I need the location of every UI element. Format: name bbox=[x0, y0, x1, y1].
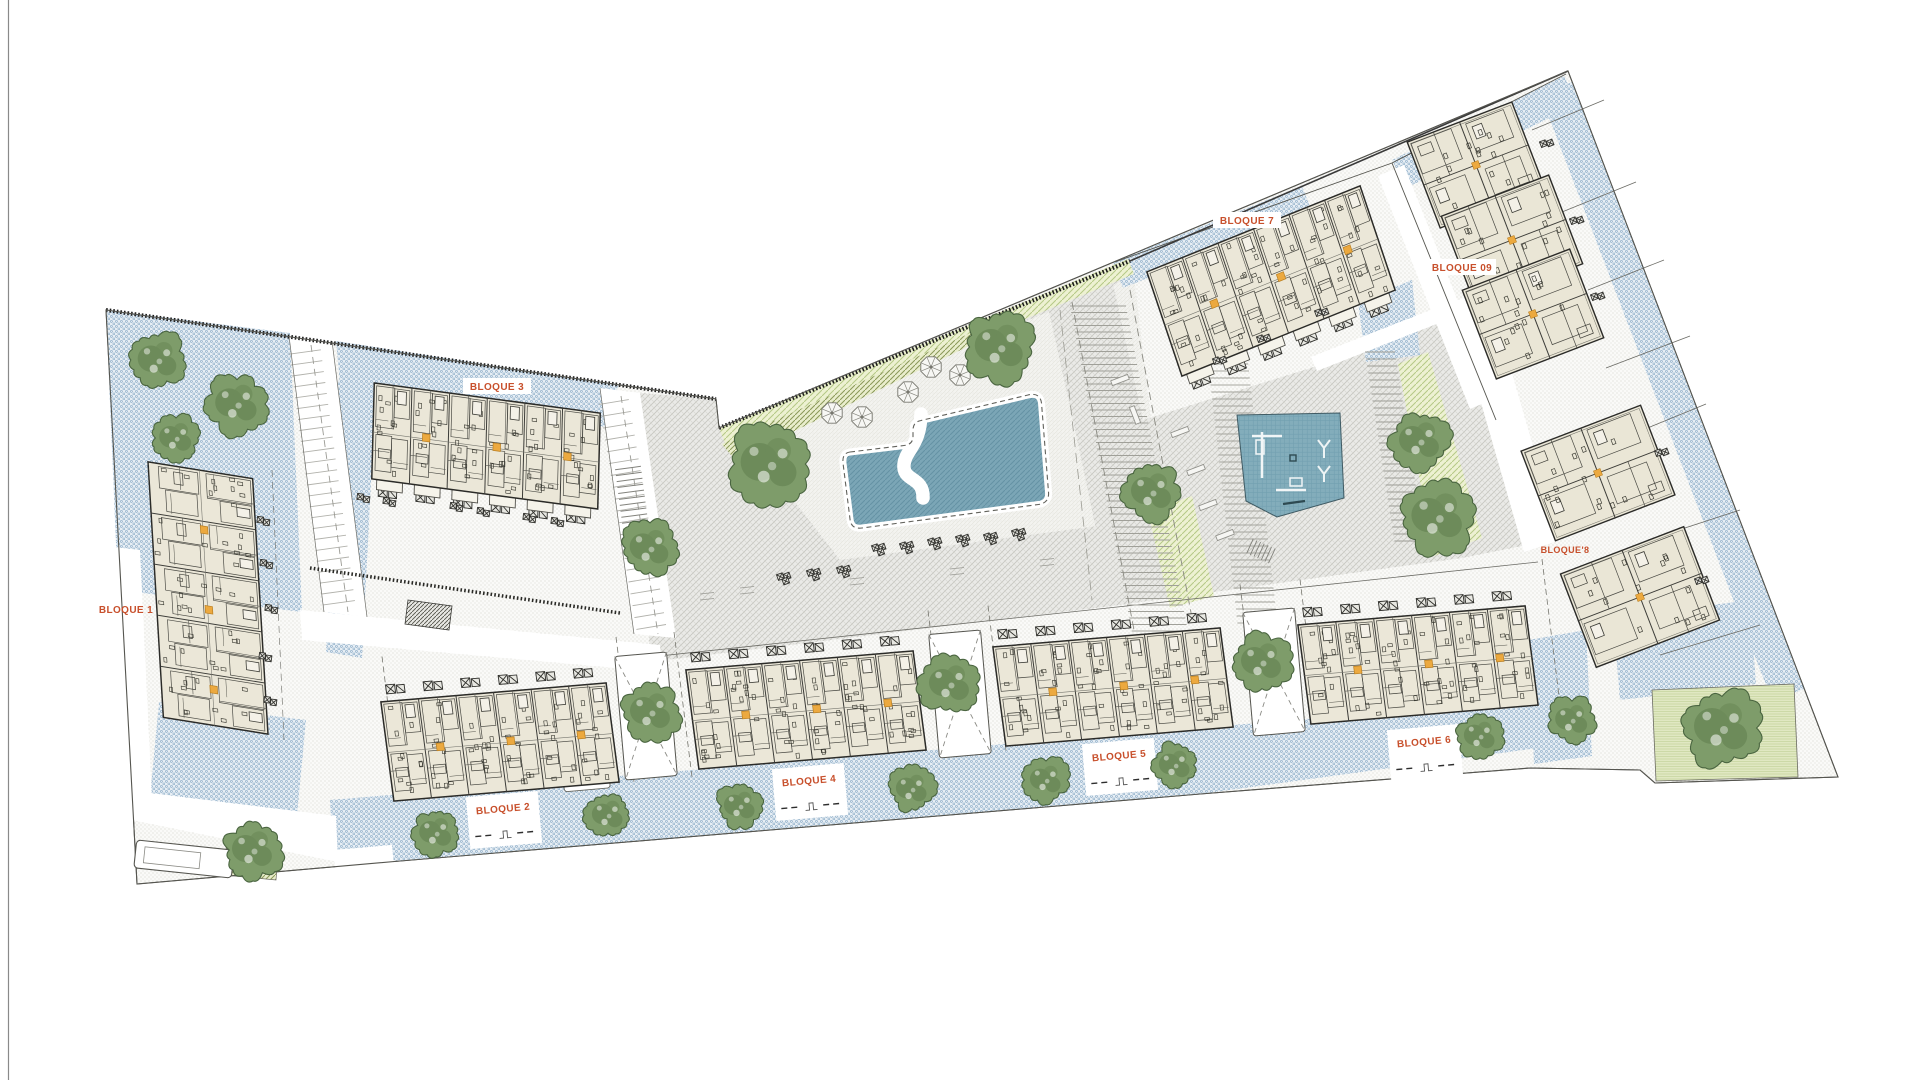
svg-text:BLOQUE 3: BLOQUE 3 bbox=[470, 382, 524, 393]
svg-text:BLOQUE 7: BLOQUE 7 bbox=[1220, 216, 1274, 227]
svg-text:BLOQUE'8: BLOQUE'8 bbox=[1541, 545, 1590, 555]
svg-text:BLOQUE 1: BLOQUE 1 bbox=[99, 605, 153, 616]
svg-text:BLOQUE 09: BLOQUE 09 bbox=[1432, 263, 1492, 274]
